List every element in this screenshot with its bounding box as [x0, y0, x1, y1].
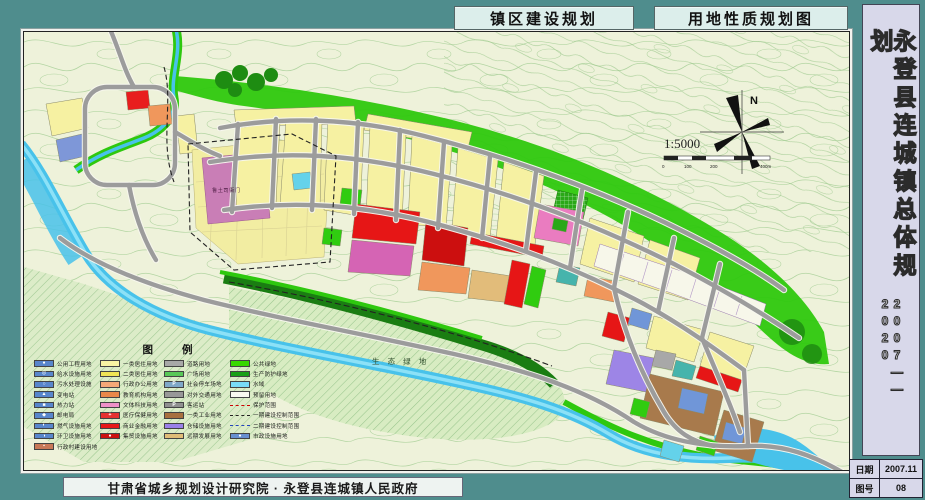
legend-label: 仓储设施用地 [187, 422, 222, 430]
legend-item: ◆邮电局 [34, 412, 98, 419]
legend-item: +医疗保健用地 [100, 412, 158, 419]
legend-item: ●市政设施用地 [230, 433, 299, 440]
legend-label: 客运站 [187, 401, 204, 409]
legend-swatch [100, 381, 120, 388]
legend-item: 二期建设控制范围 [230, 422, 299, 429]
legend-column-3: 公共绿地生产防护绿地水域预留用地保护范围一期建设控制范围二期建设控制范围●市政设… [230, 360, 299, 440]
legend-swatch: ▲ [34, 391, 54, 398]
legend-label: 二类居住用地 [123, 370, 158, 378]
legend-label: 市政设施用地 [253, 432, 288, 440]
legend-label: 道路用地 [187, 360, 210, 368]
map-canvas: 鲁土司衙门 生 态 绿 地 N 1:5000 [23, 31, 850, 471]
legend-swatch [230, 412, 250, 419]
svg-text:400m: 400m [760, 164, 772, 169]
info-table: 日期 2007.11 图号 08 [849, 459, 923, 498]
tab-construction-plan: 镇区建设规划 [454, 6, 634, 30]
legend-label: 二期建设控制范围 [253, 422, 299, 430]
legend-label: 教育机构用地 [123, 391, 158, 399]
legend-item: 保护范围 [230, 402, 299, 409]
legend-swatch: ● [230, 433, 250, 440]
legend-item: 预留用地 [230, 391, 299, 398]
legend-label: 远期发展用地 [187, 432, 222, 440]
legend-swatch: ● [34, 360, 54, 367]
legend-label: 医疗保健用地 [123, 411, 158, 419]
legend-label: 行政村建设用地 [57, 443, 98, 451]
legend-item: 生产防护绿地 [230, 370, 299, 377]
legend-item: 远期发展用地 [164, 433, 222, 440]
legend-swatch: ○ [34, 381, 54, 388]
legend-swatch: ◎ [34, 371, 54, 378]
legend-swatch: ◆ [34, 412, 54, 419]
legend-item: 商业金融用地 [100, 422, 158, 429]
legend-swatch [100, 371, 120, 378]
legend-column-1: 一类居住用地二类居住用地行政办公用地教育机构用地文体科技用地+医疗保健用地商业金… [100, 360, 158, 440]
legend-item: ◐燃气设施用地 [34, 422, 98, 429]
legend-swatch: ◑ [34, 433, 54, 440]
legend-swatch: P [164, 402, 184, 409]
legend-item: 一类居住用地 [100, 360, 158, 367]
credit-bar: 甘肃省城乡规划设计研究院 · 永登县连城镇人民政府 [63, 477, 463, 497]
legend-item: 广场用地 [164, 370, 222, 377]
scale-text: 1:5000 [664, 136, 700, 151]
legend-swatch: ● [100, 433, 120, 440]
legend-swatch [100, 391, 120, 398]
plan-title-vertical: 永登县连城镇总体规划 [868, 29, 914, 289]
legend-label: 商业金融用地 [123, 422, 158, 430]
legend-item: 一期建设控制范围 [230, 412, 299, 419]
legend-item: ▲变电站 [34, 391, 98, 398]
legend-label: 对外交通用地 [187, 391, 222, 399]
legend-label: 燃气设施用地 [57, 422, 92, 430]
legend-label: 广场用地 [187, 370, 210, 378]
planning-poster: 鲁土司衙门 生 态 绿 地 N 1:5000 [0, 0, 925, 500]
date-label: 日期 [850, 460, 880, 479]
info-row-date: 日期 2007.11 [850, 460, 923, 479]
legend-label: 一期建设控制范围 [253, 411, 299, 419]
legend-swatch [100, 360, 120, 367]
legend-swatch [230, 371, 250, 378]
legend-label: 集贸设施用地 [123, 432, 158, 440]
legend-item: ◑环卫设施用地 [34, 433, 98, 440]
legend-swatch [164, 433, 184, 440]
legend-swatch [230, 391, 250, 398]
north-label: N [750, 95, 758, 107]
sidebar: 永登县连城镇总体规划 2007——2020 [853, 0, 925, 500]
credit-text: 甘肃省城乡规划设计研究院 · 永登县连城镇人民政府 [107, 478, 418, 497]
legend-item: P客运站 [164, 402, 222, 409]
legend-item: ▪行政村建设用地 [34, 443, 98, 450]
legend-label: 一类工业用地 [187, 411, 222, 419]
map-legend: 图 例 一类居住用地二类居住用地行政办公用地教育机构用地文体科技用地+医疗保健用… [34, 342, 300, 468]
svg-text:100: 100 [684, 164, 692, 169]
tab-landuse-plan: 用地性质规划图 [654, 6, 848, 30]
legend-item: ●集贸设施用地 [100, 433, 158, 440]
heritage-site-label: 鲁土司衙门 [212, 186, 240, 194]
legend-label: 环卫设施用地 [57, 432, 92, 440]
legend-swatch: P [164, 381, 184, 388]
legend-swatch [164, 360, 184, 367]
legend-label: 变电站 [57, 391, 74, 399]
info-row-sheet: 图号 08 [850, 479, 923, 498]
legend-item: 行政办公用地 [100, 381, 158, 388]
svg-text:200: 200 [710, 164, 718, 169]
sidebar-panel: 永登县连城镇总体规划 2007——2020 [862, 4, 920, 456]
legend-swatch: ▪ [34, 443, 54, 450]
legend-item: 公共绿地 [230, 360, 299, 367]
legend-item: 道路用地 [164, 360, 222, 367]
legend-label: 水域 [253, 380, 265, 388]
legend-column-4: ●公用工程用地◎给水设施用地○污水处理设施▲变电站■热力站◆邮电局◐燃气设施用地… [34, 360, 98, 450]
sheet-value: 08 [880, 479, 923, 498]
legend-item: 对外交通用地 [164, 391, 222, 398]
legend-label: 污水处理设施 [57, 380, 92, 388]
legend-item: ○污水处理设施 [34, 381, 98, 388]
legend-swatch: + [100, 412, 120, 419]
legend-item: P社会停车场地 [164, 381, 222, 388]
date-value: 2007.11 [880, 460, 923, 479]
legend-label: 文体科技用地 [123, 401, 158, 409]
legend-item: 仓储设施用地 [164, 422, 222, 429]
eco-green-label: 生 态 绿 地 [372, 356, 429, 366]
legend-swatch [164, 391, 184, 398]
legend-label: 行政办公用地 [123, 380, 158, 388]
legend-item: ◎给水设施用地 [34, 370, 98, 377]
legend-label: 生产防护绿地 [253, 370, 288, 378]
legend-swatch [164, 423, 184, 430]
legend-swatch [230, 360, 250, 367]
legend-swatch [164, 371, 184, 378]
legend-column-2: 道路用地广场用地P社会停车场地对外交通用地P客运站一类工业用地仓储设施用地远期发… [164, 360, 222, 440]
legend-item: 水域 [230, 381, 299, 388]
legend-swatch: ◐ [34, 423, 54, 430]
tab-construction-plan-label: 镇区建设规划 [490, 8, 598, 29]
legend-swatch [100, 402, 120, 409]
map-frame: 鲁土司衙门 生 态 绿 地 N 1:5000 [20, 28, 853, 474]
legend-swatch [164, 412, 184, 419]
legend-item: 教育机构用地 [100, 391, 158, 398]
legend-label: 给水设施用地 [57, 370, 92, 378]
legend-swatch: ■ [34, 402, 54, 409]
legend-item: 二类居住用地 [100, 370, 158, 377]
legend-label: 公用工程用地 [57, 360, 92, 368]
legend-swatch [100, 423, 120, 430]
legend-label: 邮电局 [57, 411, 74, 419]
legend-swatch [230, 423, 250, 430]
legend-label: 预留用地 [253, 391, 276, 399]
legend-swatch [230, 381, 250, 388]
legend-item: ■热力站 [34, 402, 98, 409]
legend-item: 一类工业用地 [164, 412, 222, 419]
legend-item: 文体科技用地 [100, 402, 158, 409]
legend-label: 一类居住用地 [123, 360, 158, 368]
legend-title: 图 例 [94, 342, 254, 357]
plan-years-vertical: 2007——2020 [879, 297, 903, 455]
legend-swatch [230, 402, 250, 409]
tab-landuse-plan-label: 用地性质规划图 [688, 8, 814, 29]
legend-label: 热力站 [57, 401, 74, 409]
legend-label: 社会停车场地 [187, 380, 222, 388]
legend-label: 保护范围 [253, 401, 276, 409]
legend-item: ●公用工程用地 [34, 360, 98, 367]
legend-label: 公共绿地 [253, 360, 276, 368]
sheet-label: 图号 [850, 479, 880, 498]
